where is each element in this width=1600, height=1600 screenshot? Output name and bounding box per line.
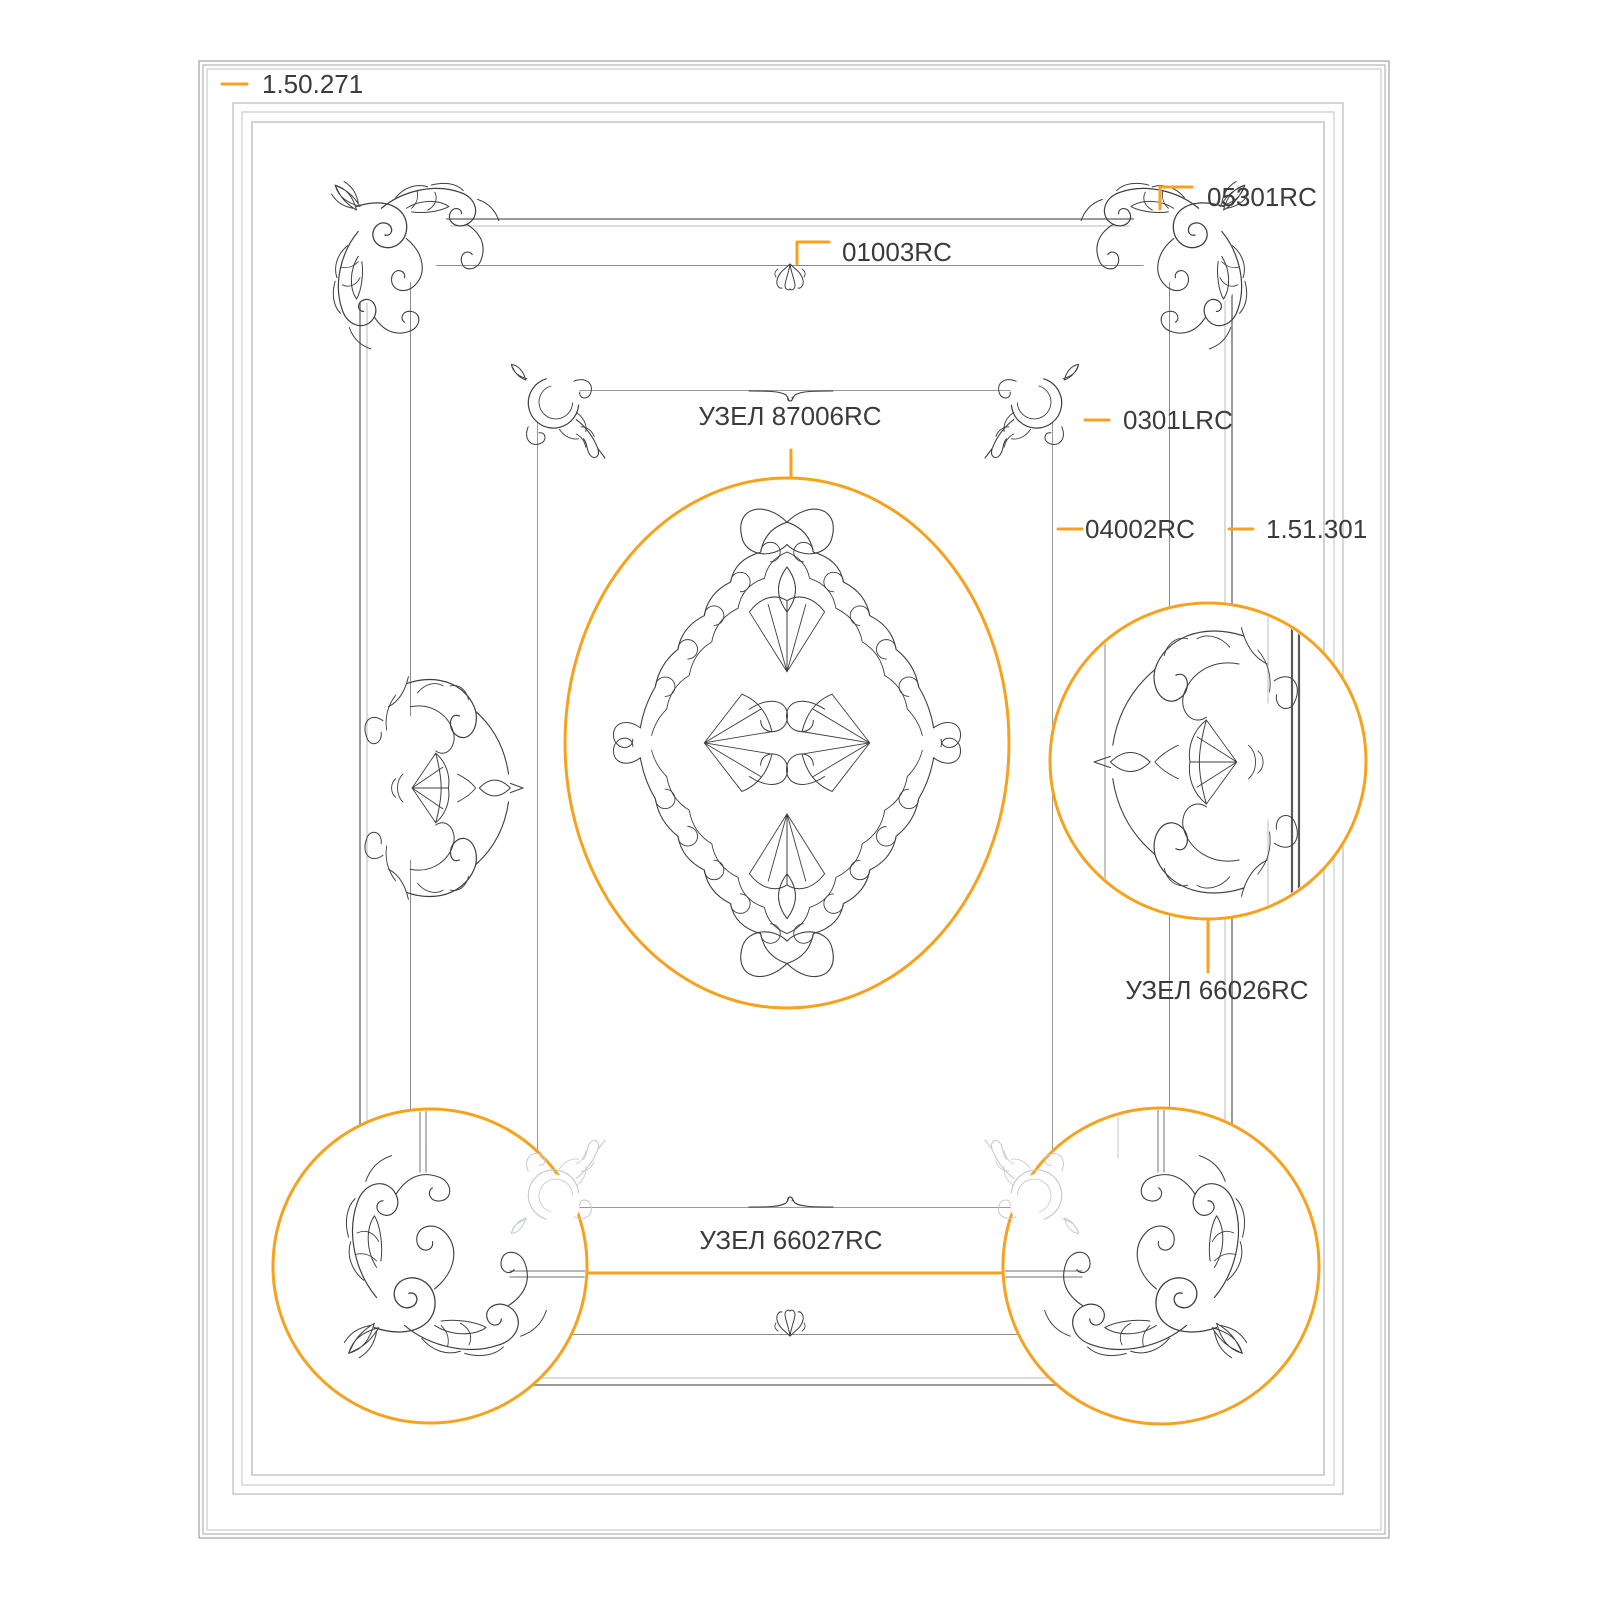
panel-corner-ornament-top-left xyxy=(511,363,605,458)
panel-corner-ornament-top-right xyxy=(985,363,1079,458)
leader-inner-molding xyxy=(797,242,829,264)
side-detail-callout xyxy=(1050,603,1366,919)
label-bottom-detail-code: УЗЕЛ 66027RC xyxy=(699,1226,882,1256)
ceiling-plan-canvas: 1.50.271 05301RC 01003RC УЗЕЛ 87006RC 03… xyxy=(0,0,1600,1600)
label-side-detail-code: УЗЕЛ 66026RC xyxy=(1125,976,1308,1006)
center-detail-callout xyxy=(565,478,1009,1008)
panel-bracket-bottom xyxy=(749,1197,833,1207)
label-panel-corner-code: 0301LRC xyxy=(1123,406,1233,436)
label-corner-ornament-code: 05301RC xyxy=(1207,183,1317,213)
label-center-detail-code: УЗЕЛ 87006RC xyxy=(698,402,881,432)
label-cornice-code: 1.51.301 xyxy=(1266,515,1367,545)
panel-bracket-top xyxy=(749,391,833,401)
label-inner-molding-code: 01003RC xyxy=(842,238,952,268)
label-outer-frame-code: 1.50.271 xyxy=(262,70,363,100)
bottom-left-detail-callout xyxy=(273,1109,589,1423)
side-cartouche-left xyxy=(365,677,523,900)
label-panel-frame-code: 04002RC xyxy=(1085,515,1195,545)
ceiling-plan-drawing xyxy=(0,0,1600,1600)
bottom-right-detail-callout xyxy=(1003,1108,1319,1424)
molding-floret-top xyxy=(775,264,805,290)
molding-floret-bottom xyxy=(775,1310,805,1336)
